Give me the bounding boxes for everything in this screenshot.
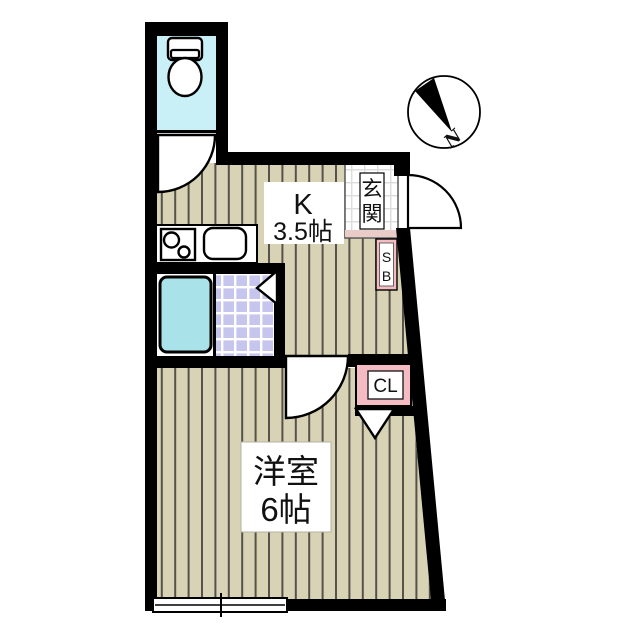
wall-toilet-top <box>145 22 228 36</box>
wall-counter-bath <box>157 263 285 274</box>
shoe-box-label-s: S <box>382 249 391 265</box>
western-room-label-line1: 洋室 <box>253 453 319 490</box>
western-room-label-line2: 6帖 <box>260 491 311 528</box>
wall-top <box>216 152 410 165</box>
floor-plan-page: CL S B N K 3.5帖 玄 関 洋室 6帖 <box>0 0 640 640</box>
western-room-label: 洋室 6帖 <box>241 442 331 532</box>
entrance-label-char1: 玄 <box>362 178 383 201</box>
kitchen-label-line2: 3.5帖 <box>273 218 333 246</box>
bath-divider-line <box>213 274 216 356</box>
burner-icon <box>179 247 190 258</box>
closet-label: CL <box>373 376 397 397</box>
wall-toilet-right <box>216 22 228 165</box>
entrance-door-swing <box>408 175 461 228</box>
kitchen-label-line1: K <box>293 189 313 221</box>
wall-left <box>145 22 157 611</box>
sink-icon <box>204 228 246 259</box>
kitchen-label: K 3.5帖 <box>264 182 344 246</box>
entrance-label: 玄 関 <box>360 173 384 229</box>
wall-room-top-left <box>145 356 285 368</box>
north-arrow-icon: N <box>408 76 480 153</box>
bathtub <box>160 277 211 352</box>
entrance-label-char2: 関 <box>362 203 383 226</box>
toilet-door-frame-line <box>157 130 216 133</box>
burner-icon <box>164 233 179 248</box>
toilet-icon <box>168 38 202 96</box>
wall-entrance-cap <box>394 152 410 176</box>
kitchen-counter <box>153 225 257 263</box>
entrance-step-strip <box>345 230 398 237</box>
floor-plan-drawing: CL S B N K 3.5帖 玄 関 洋室 6帖 <box>0 0 640 640</box>
shoe-box-label-b: B <box>382 268 391 284</box>
shoe-box: S B <box>376 239 397 290</box>
